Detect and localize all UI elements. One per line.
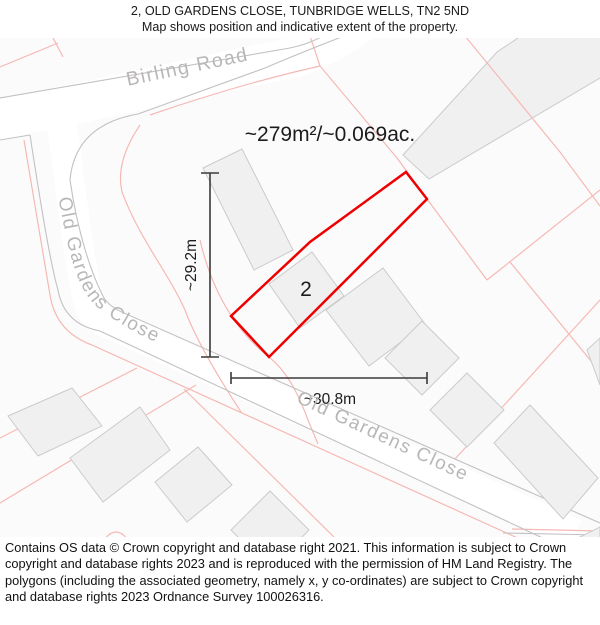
plot-number-label: 2 [300, 278, 312, 301]
map-canvas: ~279m²/~0.069ac. 2 ~29.2m ~30.8m Birling… [0, 38, 600, 537]
copyright-text: Contains OS data © Crown copyright and d… [5, 540, 594, 606]
building [587, 338, 600, 385]
page-title: 2, OLD GARDENS CLOSE, TUNBRIDGE WELLS, T… [0, 3, 600, 19]
page-subtitle: Map shows position and indicative extent… [0, 19, 600, 35]
building [231, 491, 309, 537]
building [155, 447, 232, 522]
header: 2, OLD GARDENS CLOSE, TUNBRIDGE WELLS, T… [0, 0, 600, 38]
vertical-dimension-label: ~29.2m [183, 239, 200, 291]
property-map-page: 2, OLD GARDENS CLOSE, TUNBRIDGE WELLS, T… [0, 0, 600, 625]
footer-copyright: Contains OS data © Crown copyright and d… [0, 537, 600, 625]
buildings [8, 149, 600, 537]
building [403, 38, 600, 179]
area-label: ~279m²/~0.069ac. [245, 123, 415, 146]
building [430, 373, 504, 447]
building [203, 149, 293, 270]
